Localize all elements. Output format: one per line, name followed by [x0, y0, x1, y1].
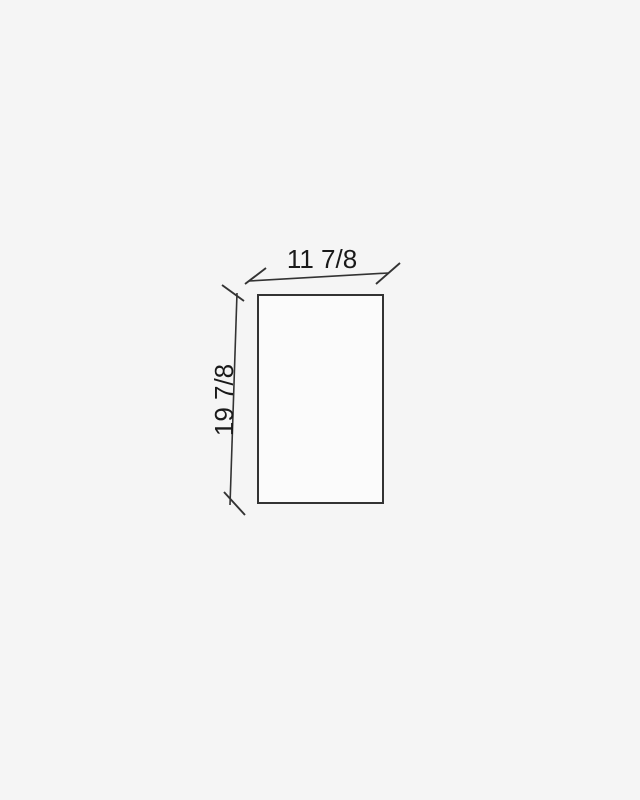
width-dimension-line [249, 273, 388, 281]
dimension-drawing-svg: 11 7/8 19 7/8 [0, 0, 640, 800]
height-dimension: 19 7/8 [209, 285, 245, 515]
height-dimension-label: 19 7/8 [209, 364, 239, 436]
dimension-drawing: 11 7/8 19 7/8 [0, 0, 640, 800]
width-tick-left-icon [245, 268, 266, 284]
width-dimension: 11 7/8 [245, 244, 400, 284]
width-dimension-label: 11 7/8 [287, 244, 357, 274]
profile-rectangle [258, 295, 383, 503]
height-tick-bottom-icon [224, 492, 245, 515]
height-tick-top-icon [222, 285, 244, 301]
